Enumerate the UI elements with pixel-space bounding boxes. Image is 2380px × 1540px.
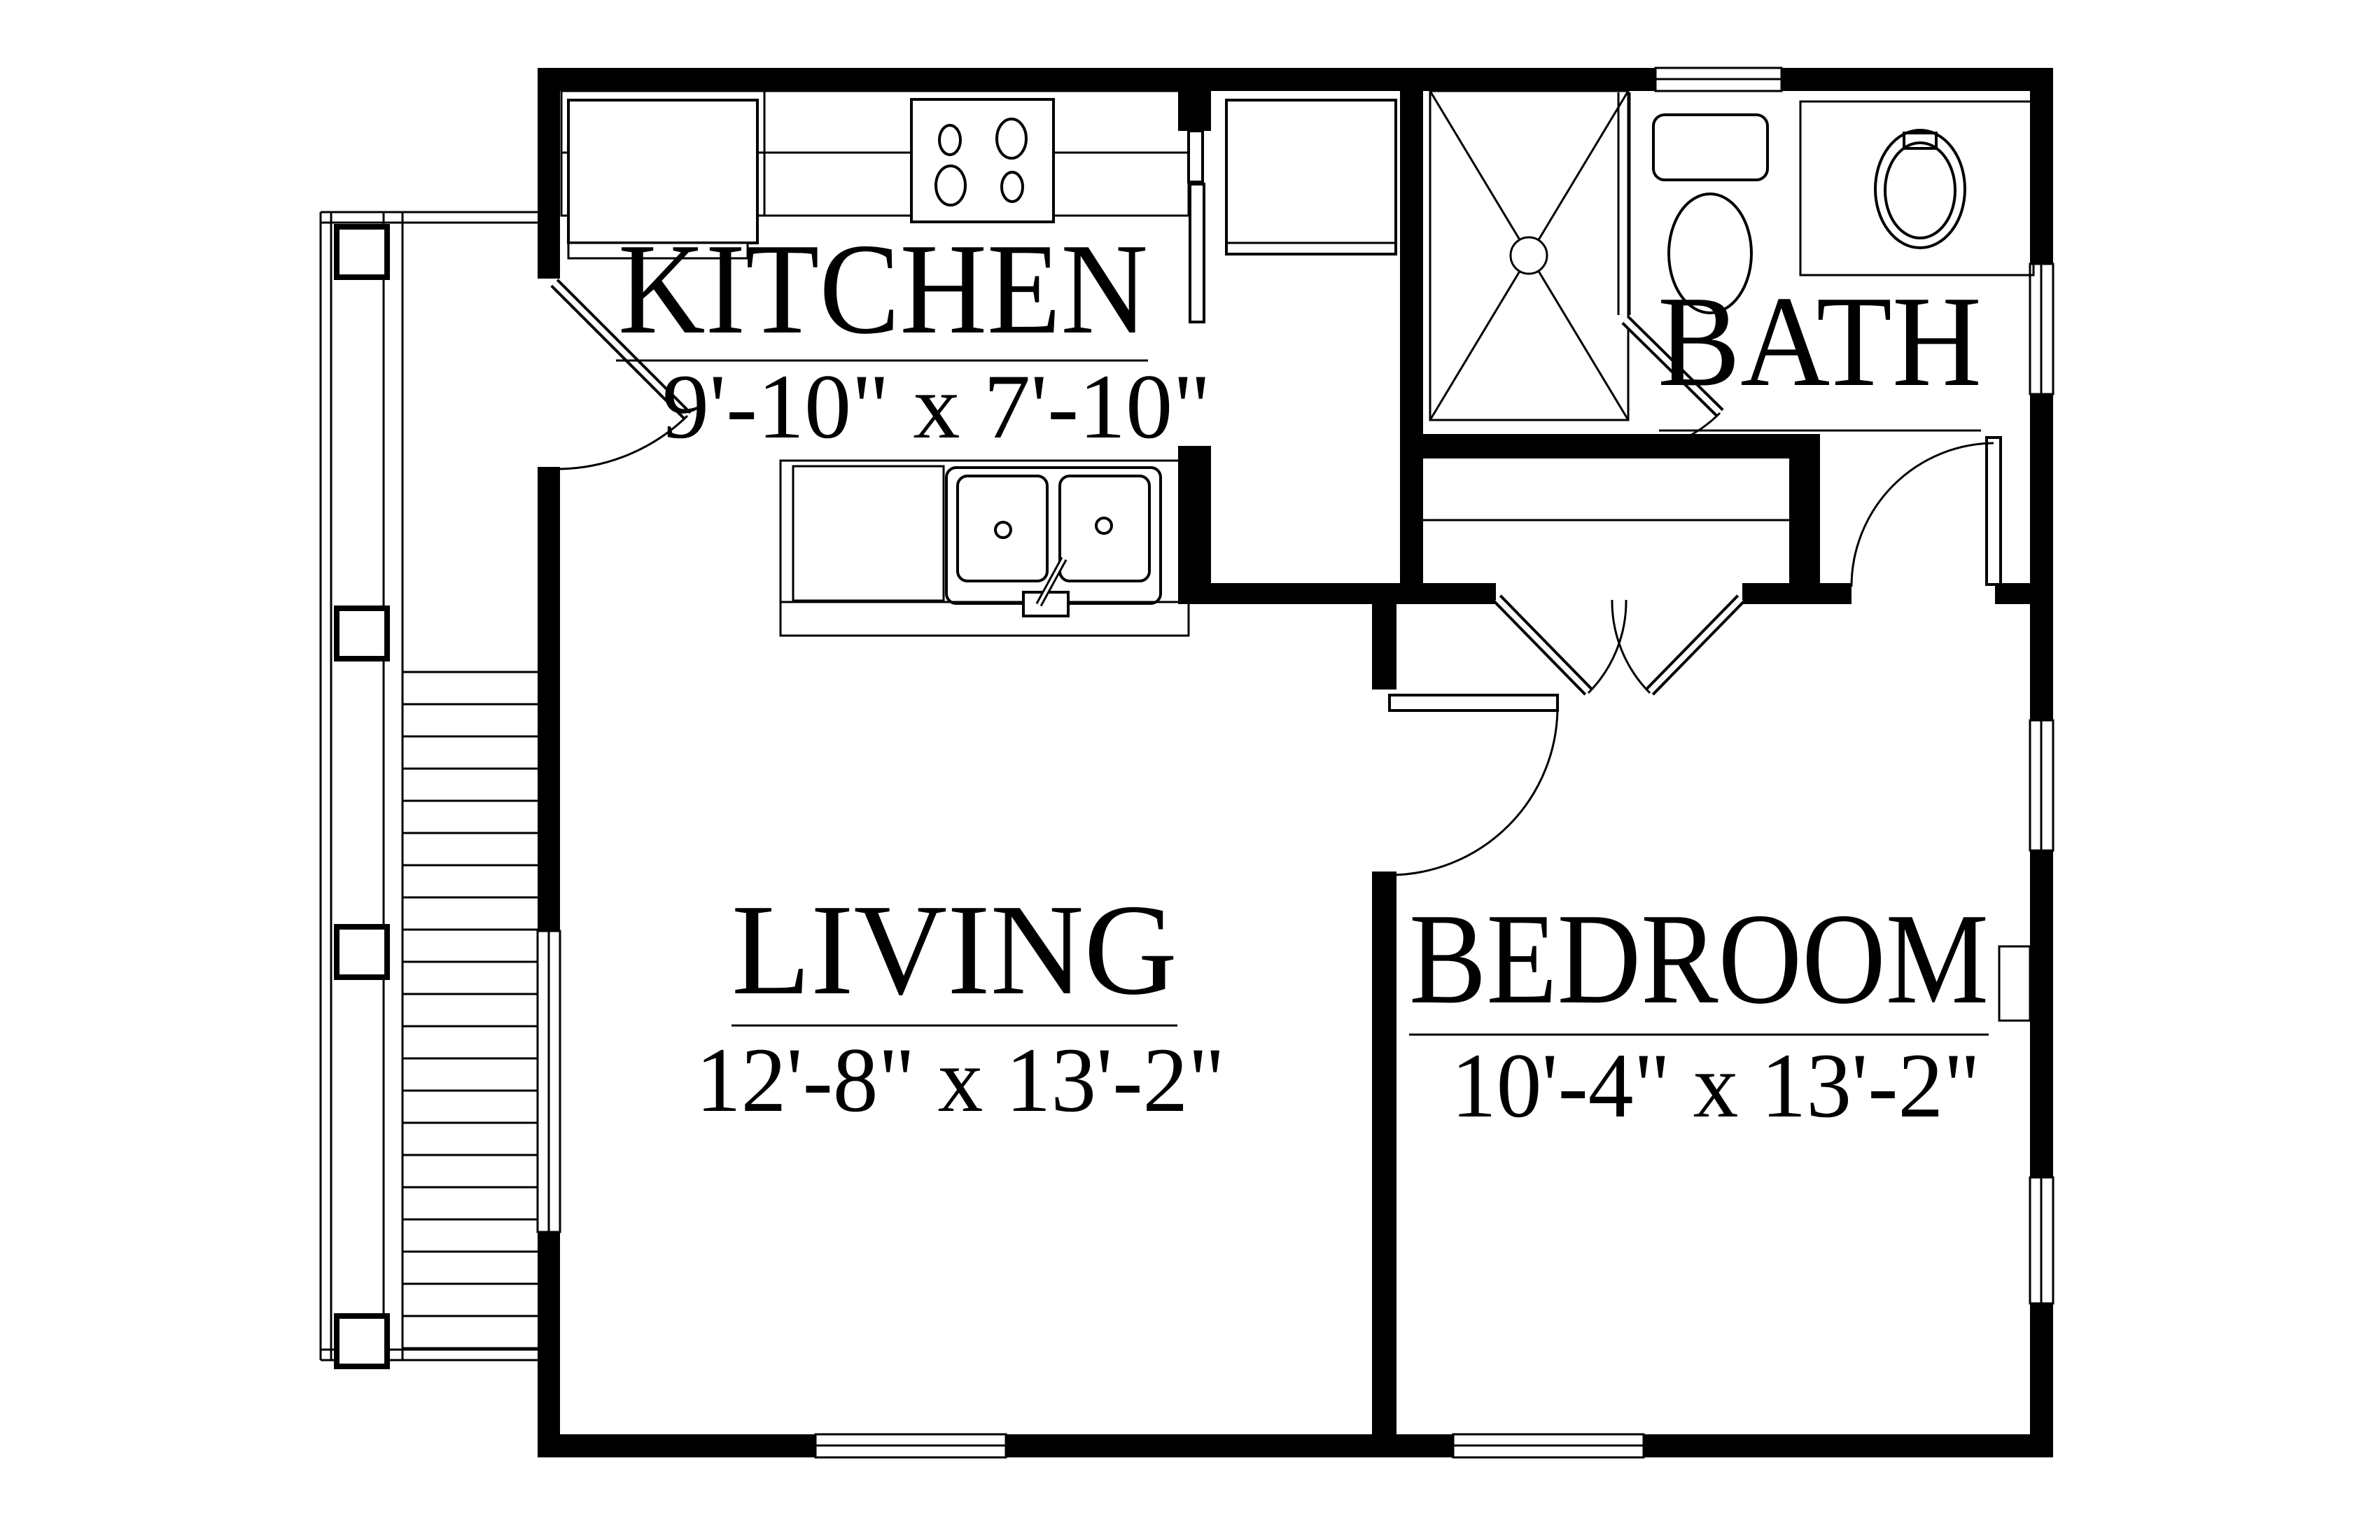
window-right-bedroom-2 [2030,1177,2053,1303]
wall-top-left-segment [538,68,1655,91]
closet-door-jambs [1189,131,1204,322]
deck-post [337,608,387,659]
window-bottom-living [815,1434,1006,1457]
floor-plan-drawing: KITCHEN 9'-10" x 7'-10" BATH LIVING 12'-… [0,0,2380,1540]
wall-left-middle [538,467,560,931]
wall-hall-south [1178,583,1496,604]
bedroom-label: BEDROOM [1409,887,1989,1031]
water-heater-cabinet [1226,100,1396,254]
wall-left-lower [538,1232,560,1457]
stove-icon [911,99,1053,222]
window-right-bedroom-1 [2030,720,2053,850]
wall-bottom-seg3 [1644,1434,2053,1457]
window-right-bath [2030,264,2053,394]
wall-bedroom-north-east [1995,583,2053,604]
bath-label: BATH [1658,269,1982,414]
deck-post [337,227,387,277]
floor-plan-page: KITCHEN 9'-10" x 7'-10" BATH LIVING 12'-… [0,0,2380,1540]
wall-bottom-seg1 [538,1434,815,1457]
kitchen-label: KITCHEN [618,217,1148,361]
bedroom-dimensions: 10'-4" x 13'-2" [1451,1034,1980,1137]
wall-right-seg3 [2030,850,2053,1177]
living-dimensions: 12'-8" x 13'-2" [696,1028,1225,1131]
wall-kitchen-closet-stub [1178,91,1211,131]
wall-bath-south [1423,434,1820,458]
window-top-bath [1655,68,1781,91]
window-left-living [538,931,560,1232]
living-label: LIVING [731,878,1177,1022]
kitchen-dimensions: 9'-10" x 7'-10" [662,355,1211,458]
deck-post [337,927,387,977]
deck-post [337,1316,387,1366]
wall-top-right-segment [1781,68,2053,91]
wall-bedroom-north-mid [1742,583,1851,604]
wall-living-bedroom-upper [1372,604,1396,689]
wall-closet-west [1400,91,1423,604]
wall-kitchen-island-stub [1178,446,1211,604]
wall-closet-east [1789,458,1820,583]
wall-living-bedroom-lower [1372,871,1396,1457]
wall-niche [1999,946,2030,1021]
wall-left-upper [538,68,560,279]
wall-right-seg2 [2030,394,2053,720]
window-bottom-bedroom [1453,1434,1644,1457]
